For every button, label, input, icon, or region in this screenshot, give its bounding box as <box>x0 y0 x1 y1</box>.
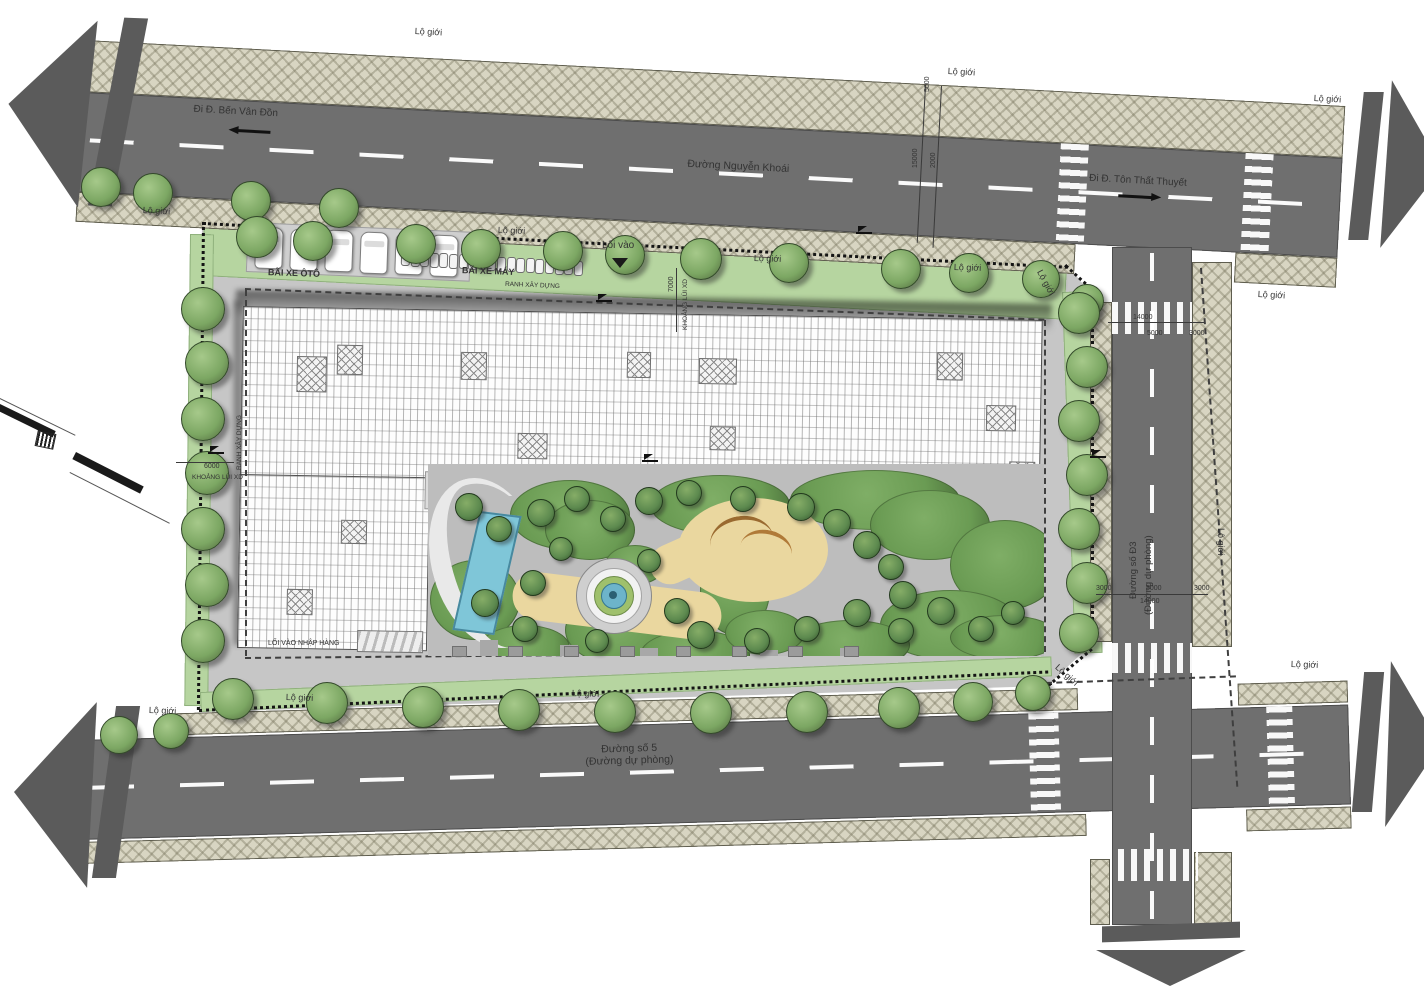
map-arrow-down-icon <box>1096 950 1246 986</box>
boundary-label: Lộ giới <box>1216 528 1226 555</box>
building-left-wing <box>237 474 430 651</box>
tree-icon <box>181 619 225 663</box>
construction-boundary-line <box>245 290 247 656</box>
tree-icon <box>1058 400 1100 442</box>
tree-icon <box>185 563 229 607</box>
crosswalk <box>1028 713 1061 814</box>
elevation-marker-icon <box>642 460 658 462</box>
tree-icon <box>402 686 444 728</box>
parked-motorbike-icon <box>439 253 449 268</box>
parked-motorbike-icon <box>526 258 536 273</box>
tree-icon <box>527 499 555 527</box>
parked-motorbike-icon <box>449 254 459 269</box>
tree-icon <box>212 678 254 720</box>
tree-icon <box>878 554 904 580</box>
dimension-value: 5000 <box>1147 330 1163 337</box>
road-name-label: Đường số Đ3 <box>1128 542 1139 599</box>
tree-icon <box>498 689 540 731</box>
dimension-value: 14000 <box>1140 598 1159 605</box>
tree-icon <box>181 397 225 441</box>
tree-icon <box>600 506 626 532</box>
planter-icon <box>732 646 747 657</box>
tree-icon <box>100 716 138 754</box>
dimension-value: 3000 <box>1194 585 1210 592</box>
tree-icon <box>635 487 663 515</box>
tree-icon <box>1066 346 1108 388</box>
tree-icon <box>676 480 702 506</box>
elevation-marker-icon <box>1090 456 1106 458</box>
stair-core <box>341 520 367 544</box>
tree-icon <box>594 691 636 733</box>
tree-icon <box>461 229 501 269</box>
tree-icon <box>1015 675 1051 711</box>
tree-icon <box>690 692 732 734</box>
tree-icon <box>664 598 690 624</box>
entrance-arrow-icon <box>612 258 628 268</box>
setback-label: KHOẢNG LÙI XD <box>682 279 689 330</box>
dimension-value: 15000 <box>912 149 919 168</box>
tree-icon <box>881 249 921 289</box>
tree-icon <box>853 531 881 559</box>
boundary-label: Lộ giới <box>1257 289 1285 300</box>
boundary-label: Lộ giới <box>954 262 982 273</box>
garden-path <box>480 640 498 656</box>
tree-icon <box>794 616 820 642</box>
tree-icon <box>549 537 573 561</box>
tree-icon <box>730 486 756 512</box>
map-arrow-right-icon <box>1385 661 1424 829</box>
boundary-label: Lộ giới <box>947 66 975 77</box>
dimension-value: 2000 <box>930 152 937 168</box>
construction-boundary-label: RANH XÂY DỰNG <box>236 415 243 470</box>
dimension-value: 6000 <box>204 463 220 470</box>
tree-icon <box>181 507 225 551</box>
stair-core <box>986 405 1016 432</box>
crosswalk <box>1118 849 1198 881</box>
tree-icon <box>181 287 225 331</box>
map-arrow-right-icon <box>1380 80 1424 251</box>
tree-icon <box>787 493 815 521</box>
dimension-value: 5000 <box>1146 585 1162 592</box>
dimension-line <box>1096 594 1208 595</box>
stair-core <box>287 589 313 615</box>
loading-entrance-label: LỐI VÀO NHẬP HÀNG <box>268 640 339 647</box>
tree-icon <box>1001 601 1025 625</box>
tree-icon <box>471 589 499 617</box>
sidewalk <box>1234 253 1337 288</box>
sidewalk <box>1090 859 1110 925</box>
stair-core <box>627 352 651 378</box>
shrub-mass <box>950 615 1044 656</box>
stair-core <box>296 356 327 393</box>
sidewalk <box>1194 852 1232 925</box>
site-plan: Đi Đ. Bến Vân Đồn Đường Nguyễn Khoái Đi … <box>0 0 1424 987</box>
stair-core <box>517 433 547 460</box>
tree-icon <box>968 616 994 642</box>
sidewalk <box>1246 806 1352 831</box>
tree-icon <box>786 691 828 733</box>
stair-core <box>709 426 735 450</box>
road-right: Đường số Đ3 (Đường dự phòng) <box>1090 247 1240 925</box>
tree-icon <box>396 224 436 264</box>
tree-icon <box>81 167 121 207</box>
entrance-label: Lối vào <box>602 240 634 251</box>
tree-icon <box>888 618 914 644</box>
crosswalk <box>1266 706 1295 807</box>
boundary-label: Lộ giới <box>498 225 526 236</box>
planter-icon <box>788 646 803 657</box>
tree-icon <box>585 629 609 653</box>
tree-icon <box>1058 508 1100 550</box>
tree-icon <box>878 687 920 729</box>
dimension-line <box>676 268 677 332</box>
dimension-value: 14000 <box>1133 314 1152 321</box>
dimension-value: 3000 <box>1096 585 1112 592</box>
map-arrow-left-icon <box>9 698 97 888</box>
tree-icon <box>185 341 229 385</box>
dimension-value: 7000 <box>668 276 675 292</box>
map-arrow-bar <box>1348 92 1384 240</box>
tree-icon <box>486 516 512 542</box>
boundary-label: Lộ giới <box>149 705 177 716</box>
planter-icon <box>508 646 523 657</box>
sidewalk <box>1238 681 1349 706</box>
tree-icon <box>637 549 661 573</box>
loading-canopy-icon <box>352 648 372 656</box>
parked-motorbike-icon <box>516 257 526 272</box>
map-arrow-bar <box>1352 672 1384 812</box>
car-parking-label: BÃI XE ÔTÔ <box>268 267 320 279</box>
tree-icon <box>293 221 333 261</box>
tree-icon <box>236 216 278 258</box>
tree-icon <box>1066 454 1108 496</box>
stair-core <box>461 352 487 380</box>
planter-icon <box>844 646 859 657</box>
crosswalk <box>1056 143 1089 244</box>
tree-icon <box>953 682 993 722</box>
boundary-label: Lộ giới <box>414 26 442 37</box>
stair-core <box>699 358 737 385</box>
boundary-label: Lộ giới <box>754 253 782 264</box>
elevation-marker-icon <box>208 452 224 454</box>
tree-icon <box>823 509 851 537</box>
tree-icon <box>455 493 483 521</box>
boundary-label: Lộ giới <box>572 688 600 699</box>
tree-icon <box>231 181 271 221</box>
tree-icon <box>927 597 955 625</box>
crosswalk <box>1240 153 1273 254</box>
boundary-label: Lộ giới <box>286 692 314 703</box>
tree-icon <box>1059 613 1099 653</box>
tree-icon <box>153 713 189 749</box>
planter-icon <box>452 646 467 657</box>
dimension-line <box>1108 322 1204 323</box>
crosswalk <box>1112 643 1192 673</box>
planter-icon <box>676 646 691 657</box>
tree-icon <box>1066 562 1108 604</box>
building-main-block <box>240 306 1043 490</box>
dimension-value: 3000 <box>1189 330 1205 337</box>
tree-icon <box>889 581 917 609</box>
construction-boundary-line <box>1044 320 1046 652</box>
tree-icon <box>564 486 590 512</box>
tree-icon <box>543 231 583 271</box>
tree-icon <box>1058 292 1100 334</box>
tree-icon <box>744 628 770 654</box>
bike-parking-label: BÃI XE MÁY <box>462 265 515 277</box>
tree-icon <box>520 570 546 596</box>
stair-core <box>337 345 364 375</box>
garden-path <box>640 648 658 656</box>
planter-icon <box>564 646 579 657</box>
boundary-label: Lộ giới <box>1291 659 1319 670</box>
setback-label: KHOẢNG LÙI XD <box>192 474 243 481</box>
tree-icon <box>949 253 989 293</box>
tree-icon <box>687 621 715 649</box>
elevation-marker-icon <box>856 232 872 234</box>
tree-icon <box>843 599 871 627</box>
tree-icon <box>319 188 359 228</box>
tree-icon <box>185 451 229 495</box>
tree-icon <box>306 682 348 724</box>
parked-motorbike-icon <box>535 259 545 274</box>
boundary-label: Lộ giới <box>1313 93 1341 104</box>
boundary-label: Lộ giới <box>142 205 170 216</box>
dimension-value: 5000 <box>924 76 931 92</box>
stair-core <box>937 352 963 380</box>
map-arrow-bar <box>1102 922 1240 943</box>
tree-icon <box>512 616 538 642</box>
tree-icon <box>680 238 722 280</box>
elevation-marker-icon <box>596 300 612 302</box>
planter-icon <box>620 646 635 657</box>
parked-car-icon <box>359 231 388 274</box>
offsite-structure-icon <box>35 430 57 450</box>
offsite-road-mark <box>72 452 143 494</box>
